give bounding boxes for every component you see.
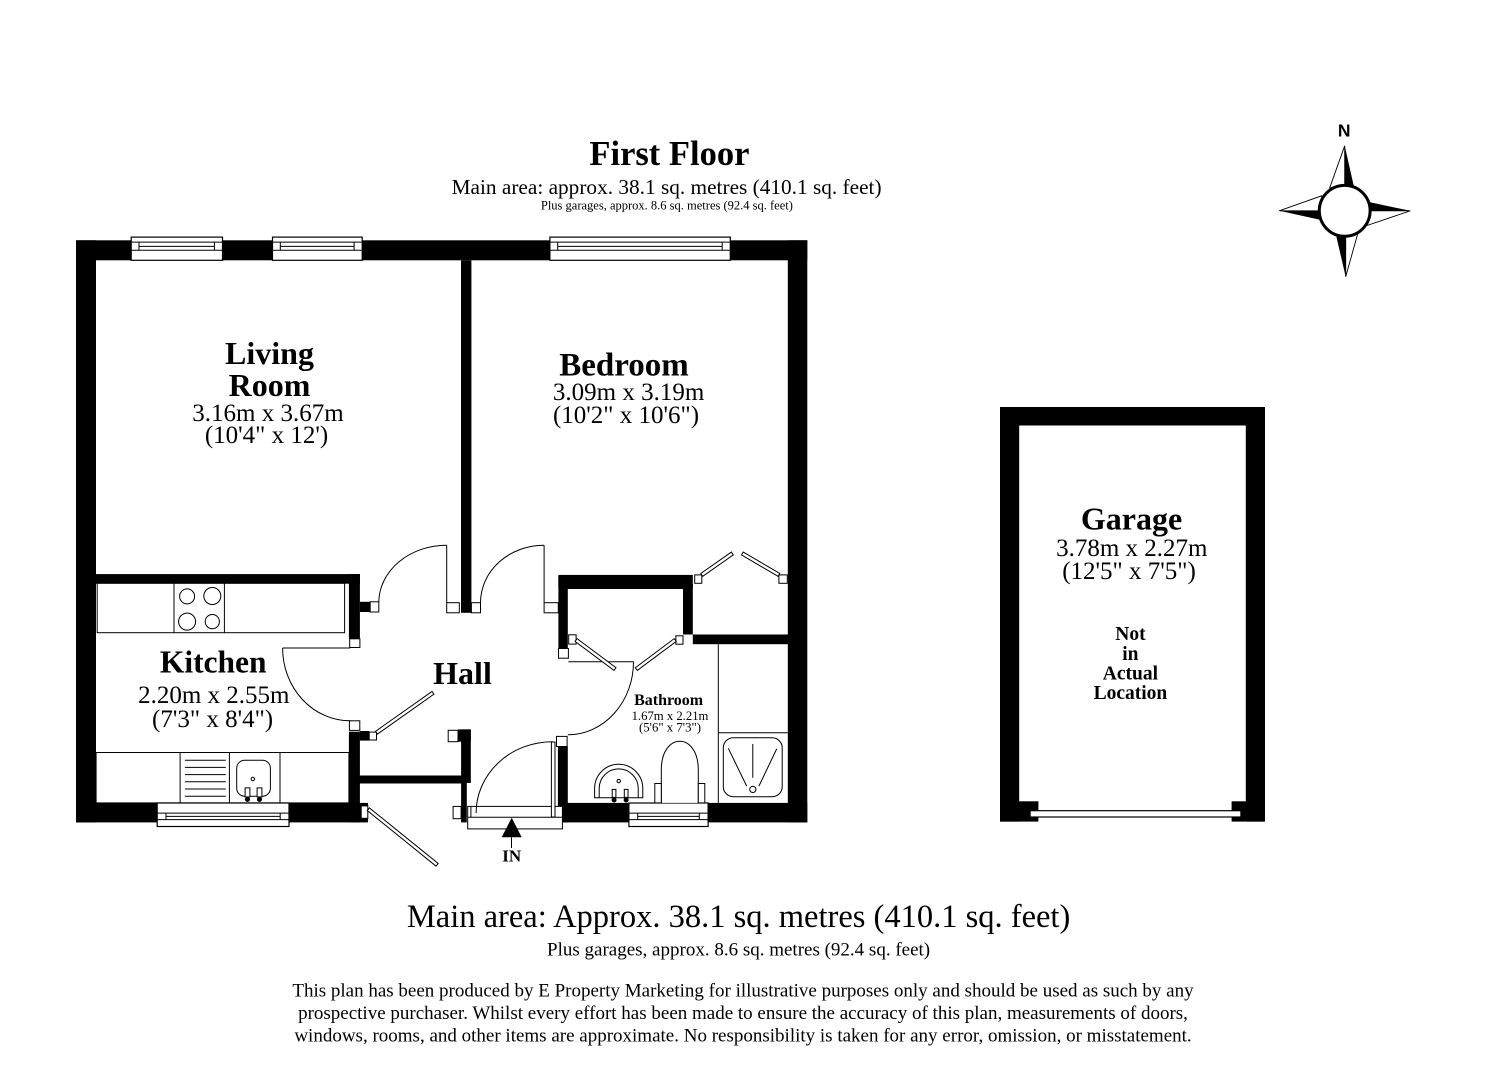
svg-text:Actual: Actual bbox=[1103, 664, 1159, 685]
svg-text:Kitchen: Kitchen bbox=[160, 645, 267, 680]
svg-text:N: N bbox=[1338, 121, 1351, 141]
svg-text:(10'4" x 12'): (10'4" x 12') bbox=[205, 422, 328, 449]
svg-text:windows, rooms, and other item: windows, rooms, and other items are appr… bbox=[294, 1025, 1191, 1046]
svg-text:First Floor: First Floor bbox=[589, 135, 749, 173]
svg-text:Plus garages, approx. 8.6 sq.: Plus garages, approx. 8.6 sq. metres (92… bbox=[541, 198, 793, 212]
svg-text:Main area: approx. 38.1 sq. me: Main area: approx. 38.1 sq. metres (410.… bbox=[452, 175, 882, 199]
svg-text:in: in bbox=[1122, 644, 1138, 665]
svg-text:Room: Room bbox=[229, 367, 311, 403]
svg-text:Plus garages, approx. 8.6 sq.: Plus garages, approx. 8.6 sq. metres (92… bbox=[547, 940, 930, 961]
svg-text:2.20m x 2.55m: 2.20m x 2.55m bbox=[138, 682, 290, 709]
svg-text:Living: Living bbox=[225, 335, 314, 371]
svg-text:Not: Not bbox=[1115, 624, 1146, 645]
svg-text:Location: Location bbox=[1094, 683, 1168, 704]
svg-text:Main area: Approx. 38.1 sq. me: Main area: Approx. 38.1 sq. metres (410.… bbox=[407, 899, 1070, 935]
svg-text:Bathroom: Bathroom bbox=[634, 692, 704, 709]
svg-text:IN: IN bbox=[502, 847, 522, 866]
svg-text:(7'3" x 8'4"): (7'3" x 8'4") bbox=[152, 706, 273, 733]
svg-text:(12'5" x 7'5"): (12'5" x 7'5") bbox=[1062, 558, 1196, 585]
svg-text:(5'6" x 7'3"): (5'6" x 7'3") bbox=[639, 721, 701, 735]
svg-text:Hall: Hall bbox=[433, 655, 492, 691]
svg-text:This plan has been produced by: This plan has been produced by E Propert… bbox=[292, 981, 1194, 1002]
svg-text:Garage: Garage bbox=[1081, 501, 1182, 537]
svg-text:(10'2" x 10'6"): (10'2" x 10'6") bbox=[553, 402, 699, 429]
svg-text:prospective purchaser. Whilst: prospective purchaser. Whilst every effo… bbox=[298, 1003, 1188, 1024]
